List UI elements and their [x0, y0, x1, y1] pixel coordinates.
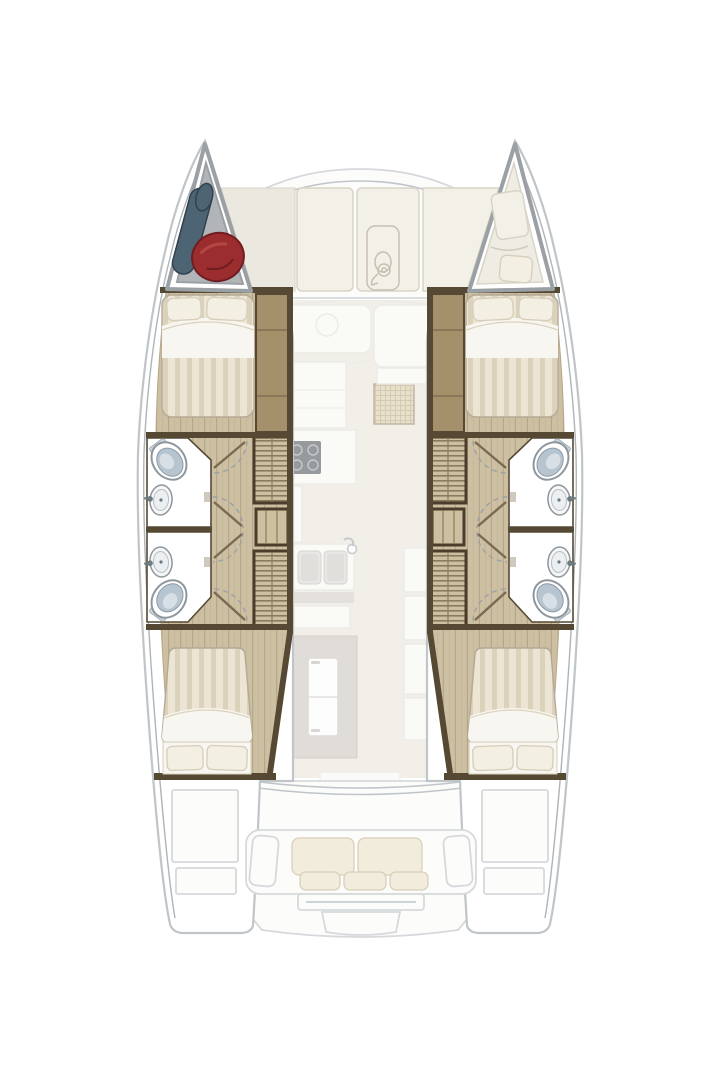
sofa-armrest [443, 835, 473, 887]
sofa-back-cushion [292, 838, 354, 875]
sofa-armrest [249, 835, 279, 887]
sofa-seat-cushion [390, 872, 428, 890]
saloon-aft-door [320, 772, 400, 781]
sofa-seat-cushion [344, 872, 386, 890]
foredeck [221, 169, 499, 298]
cockpit-locker [482, 790, 548, 862]
rattan-mat [374, 384, 414, 424]
cockpit-locker [176, 868, 236, 894]
forward-table [316, 314, 338, 336]
fridge-icon [291, 636, 357, 758]
saloon [283, 300, 436, 781]
sink-icon [292, 538, 357, 590]
worktop [292, 592, 354, 603]
cockpit-sofa [246, 830, 476, 894]
berth-cushion [490, 190, 529, 240]
sofa-back-cushion [358, 838, 422, 875]
cockpit-locker [484, 868, 544, 894]
cockpit-locker [172, 790, 238, 862]
berth-pillow [499, 255, 533, 284]
side-counter [377, 368, 427, 384]
sofa-seat-cushion [300, 872, 340, 890]
foredeck-cushion [297, 188, 353, 291]
fridge-handle [311, 729, 320, 732]
step [322, 912, 400, 935]
sink-basin-inner [301, 554, 318, 581]
sink-basin-inner [327, 554, 344, 581]
deck-plan-canvas [0, 0, 720, 1080]
fridge-handle [311, 661, 320, 664]
galley-cabinet [294, 606, 350, 628]
